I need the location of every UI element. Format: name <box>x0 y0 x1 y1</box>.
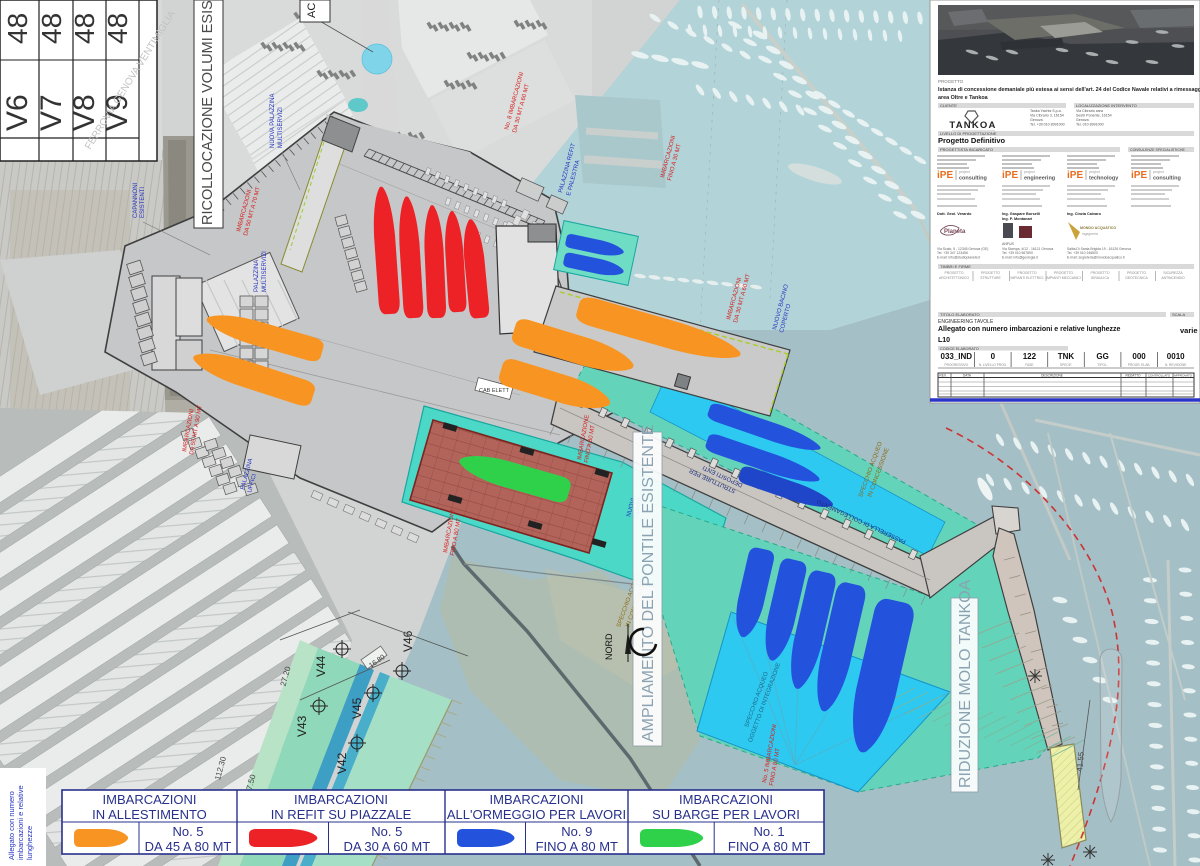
svg-text:E-mail: info@geologia.it: E-mail: info@geologia.it <box>1002 255 1038 259</box>
svg-text:project: project <box>959 170 970 174</box>
svg-text:ESISTENTI: ESISTENTI <box>140 187 146 218</box>
svg-text:iPE: iPE <box>1067 170 1083 181</box>
svg-text:IMPIANTI MECCANICI: IMPIANTI MECCANICI <box>1046 276 1081 280</box>
svg-text:CLIENTE: CLIENTE <box>940 103 957 108</box>
svg-text:engineering: engineering <box>1024 176 1055 182</box>
svg-text:No. 1: No. 1 <box>754 824 785 839</box>
svg-text:ANTINCENDIO: ANTINCENDIO <box>1161 276 1185 280</box>
svg-text:V44: V44 <box>314 655 328 677</box>
svg-text:TIMBRI E FIRME: TIMBRI E FIRME <box>940 264 971 269</box>
svg-text:PROGETTO: PROGETTO <box>938 79 964 84</box>
svg-text:REDATTO: REDATTO <box>1126 374 1141 378</box>
svg-text:Via Cibrario 3, 16154: Via Cibrario 3, 16154 <box>1030 114 1064 118</box>
svg-text:PROGETTO: PROGETTO <box>981 271 1000 275</box>
svg-text:033_IND: 033_IND <box>941 352 973 361</box>
svg-text:ALL'ORMEGGIO PER LAVORI: ALL'ORMEGGIO PER LAVORI <box>447 807 626 822</box>
svg-text:48: 48 <box>102 13 133 44</box>
svg-text:Genova: Genova <box>1076 118 1089 122</box>
svg-text:PROGETTO: PROGETTO <box>1018 271 1037 275</box>
svg-text:No. 5: No. 5 <box>371 824 402 839</box>
svg-text:V45: V45 <box>350 697 364 719</box>
svg-text:DESCRIZIONE: DESCRIZIONE <box>1041 374 1063 378</box>
svg-text:imbarcazioni e relative: imbarcazioni e relative <box>16 785 25 860</box>
svg-text:SICUREZZA: SICUREZZA <box>1163 271 1183 275</box>
svg-text:IMBARCAZIONI: IMBARCAZIONI <box>679 792 773 807</box>
svg-text:0010: 0010 <box>1167 352 1185 361</box>
svg-text:48: 48 <box>36 13 67 44</box>
svg-text:CAPANNONI: CAPANNONI <box>133 182 139 218</box>
svg-text:ANFUS: ANFUS <box>1002 242 1015 246</box>
svg-text:PALAZZINA: PALAZZINA <box>254 260 260 292</box>
svg-text:DATA: DATA <box>963 374 972 378</box>
svg-text:project: project <box>1024 170 1035 174</box>
svg-text:PROGETTISTA INCARICATO: PROGETTISTA INCARICATO <box>940 147 993 152</box>
svg-text:IMBARCAZIONI: IMBARCAZIONI <box>103 792 197 807</box>
svg-text:ENGINEERING TAVOLE: ENGINEERING TAVOLE <box>938 319 994 325</box>
svg-text:lunghezze: lunghezze <box>25 826 34 860</box>
svg-text:0: 0 <box>991 352 996 361</box>
svg-text:MONDO ACQUATICO: MONDO ACQUATICO <box>1080 226 1116 230</box>
svg-text:Ing. P. Montanari: Ing. P. Montanari <box>1002 217 1032 221</box>
svg-text:FASE: FASE <box>1025 363 1033 367</box>
svg-text:N. REVISIONE: N. REVISIONE <box>1165 363 1186 367</box>
svg-text:E-mail: segreteria@mondoacquat: E-mail: segreteria@mondoacquatico.it <box>1067 255 1125 259</box>
svg-text:TITOLO ELABORATO: TITOLO ELABORATO <box>940 312 980 317</box>
svg-text:APPROVATO: APPROVATO <box>1174 374 1193 378</box>
svg-text:project: project <box>1089 170 1100 174</box>
svg-text:PROGETTO: PROGETTO <box>1127 271 1146 275</box>
svg-text:000: 000 <box>1132 352 1146 361</box>
svg-text:Tel. +39 010 8991000: Tel. +39 010 8991000 <box>1030 123 1065 127</box>
svg-text:NUOVA PALAZZINA: NUOVA PALAZZINA <box>270 94 276 148</box>
svg-text:MULTISERVIZI: MULTISERVIZI <box>278 107 284 148</box>
svg-text:Genova: Genova <box>1030 118 1043 122</box>
svg-text:REV.: REV. <box>939 374 946 378</box>
svg-text:AMPLIAMENTO DEL PONTILE ESISTE: AMPLIAMENTO DEL PONTILE ESISTENTE <box>640 425 657 742</box>
svg-text:Via Cibrario area: Via Cibrario area <box>1076 109 1103 113</box>
svg-text:PROGETTO: PROGETTO <box>945 271 964 275</box>
svg-text:TNK: TNK <box>1058 352 1075 361</box>
svg-text:Ing. Cinzia Caivaro: Ing. Cinzia Caivaro <box>1067 212 1102 216</box>
svg-text:IMBARCAZIONI: IMBARCAZIONI <box>490 792 584 807</box>
svg-text:No. 9: No. 9 <box>561 824 592 839</box>
svg-text:technology: technology <box>1089 176 1119 182</box>
svg-text:CONTROLLATO: CONTROLLATO <box>1148 374 1171 378</box>
svg-text:iPE: iPE <box>937 170 953 181</box>
svg-text:48: 48 <box>69 13 100 44</box>
svg-text:ingegneria: ingegneria <box>1082 232 1098 236</box>
svg-text:project: project <box>1153 170 1164 174</box>
svg-text:ARCHITETTONICO: ARCHITETTONICO <box>939 276 969 280</box>
svg-text:Tel. 010 8991000: Tel. 010 8991000 <box>1076 123 1104 127</box>
svg-text:L10: L10 <box>938 337 950 344</box>
svg-text:IN ALLESTIMENTO: IN ALLESTIMENTO <box>92 807 207 822</box>
svg-text:RIDUZIONE MOLO TANKOA: RIDUZIONE MOLO TANKOA <box>957 579 974 788</box>
svg-text:E-mail: info@studioplaneta.it: E-mail: info@studioplaneta.it <box>937 255 980 259</box>
svg-text:PROGRESSIVO: PROGRESSIVO <box>945 363 969 367</box>
svg-text:CONSULENZE SPECIALISTICHE: CONSULENZE SPECIALISTICHE <box>1130 148 1186 152</box>
svg-text:N. LIVELLO PROG.: N. LIVELLO PROG. <box>979 363 1007 367</box>
svg-text:DA 45 A 80 MT: DA 45 A 80 MT <box>145 839 232 854</box>
svg-text:AC: AC <box>306 3 318 18</box>
svg-text:FINO A 80 MT: FINO A 80 MT <box>728 839 810 854</box>
svg-text:TIPOL.: TIPOL. <box>1098 363 1108 367</box>
svg-text:Progetto Definitivo: Progetto Definitivo <box>938 136 1006 145</box>
svg-text:iPE: iPE <box>1002 170 1018 181</box>
svg-text:No. 5: No. 5 <box>172 824 203 839</box>
svg-text:FINO A 80 MT: FINO A 80 MT <box>536 839 618 854</box>
svg-text:DA 30 A 60 MT: DA 30 A 60 MT <box>343 839 430 854</box>
svg-text:varie: varie <box>1180 326 1198 335</box>
svg-text:V7: V7 <box>35 94 68 131</box>
svg-text:V46: V46 <box>401 630 415 652</box>
svg-text:GG: GG <box>1096 352 1108 361</box>
svg-text:MULTISERVIZI: MULTISERVIZI <box>262 251 268 292</box>
svg-text:GEOTECNICA: GEOTECNICA <box>1125 276 1148 280</box>
svg-text:IN REFIT SU PIAZZALE: IN REFIT SU PIAZZALE <box>271 807 412 822</box>
svg-text:RICOLLOCAZIONE VOLUMI ESISTENT: RICOLLOCAZIONE VOLUMI ESISTENT <box>200 0 216 225</box>
svg-text:consulting: consulting <box>1153 176 1181 182</box>
svg-text:Tanka Yachts S.p.a.: Tanka Yachts S.p.a. <box>1030 109 1062 113</box>
svg-text:STRUTTURE: STRUTTURE <box>980 276 1001 280</box>
svg-text:SU BARGE PER LAVORI: SU BARGE PER LAVORI <box>652 807 800 822</box>
svg-text:IMPIANTI ELETTRICI: IMPIANTI ELETTRICI <box>1011 276 1044 280</box>
svg-text:Allegato con numero: Allegato con numero <box>7 791 16 860</box>
svg-text:TANKOA: TANKOA <box>949 120 996 131</box>
svg-text:Sestri Ponente, 16154: Sestri Ponente, 16154 <box>1076 114 1112 118</box>
svg-text:PROGR. ELAB.: PROGR. ELAB. <box>1128 363 1151 367</box>
svg-text:V6: V6 <box>1 94 34 131</box>
svg-text:area Oltre e Tankoa: area Oltre e Tankoa <box>938 95 989 101</box>
svg-text:SCALA: SCALA <box>1172 312 1185 317</box>
svg-text:NORD: NORD <box>604 633 614 660</box>
svg-text:Istanza di concessione demania: Istanza di concessione demaniale più est… <box>938 87 1200 93</box>
svg-text:SPECIF.: SPECIF. <box>1060 363 1072 367</box>
svg-text:IMBARCAZIONI: IMBARCAZIONI <box>294 792 388 807</box>
svg-text:PROGETTO: PROGETTO <box>1054 271 1073 275</box>
svg-text:Ing. Gaspare Borselli: Ing. Gaspare Borselli <box>1002 212 1040 216</box>
svg-text:LOCALIZZAZIONE INTERVENTO: LOCALIZZAZIONE INTERVENTO <box>1076 103 1137 108</box>
svg-text:Allegato con numero imbarcazio: Allegato con numero imbarcazioni e relat… <box>938 326 1121 333</box>
svg-text:V43: V43 <box>295 715 309 737</box>
svg-text:Planeta: Planeta <box>944 229 966 235</box>
svg-text:Dott. Geol. Verardo: Dott. Geol. Verardo <box>937 212 972 216</box>
svg-text:122: 122 <box>1023 352 1037 361</box>
svg-text:48: 48 <box>2 13 33 44</box>
svg-text:IDRAULICA: IDRAULICA <box>1091 276 1110 280</box>
svg-text:consulting: consulting <box>959 176 987 182</box>
svg-text:CAB ELETT: CAB ELETT <box>479 388 510 394</box>
svg-text:CODICE ELABORATO: CODICE ELABORATO <box>940 347 979 351</box>
svg-text:V42: V42 <box>335 752 349 774</box>
svg-text:PROGETTO: PROGETTO <box>1091 271 1110 275</box>
svg-text:iPE: iPE <box>1131 170 1147 181</box>
